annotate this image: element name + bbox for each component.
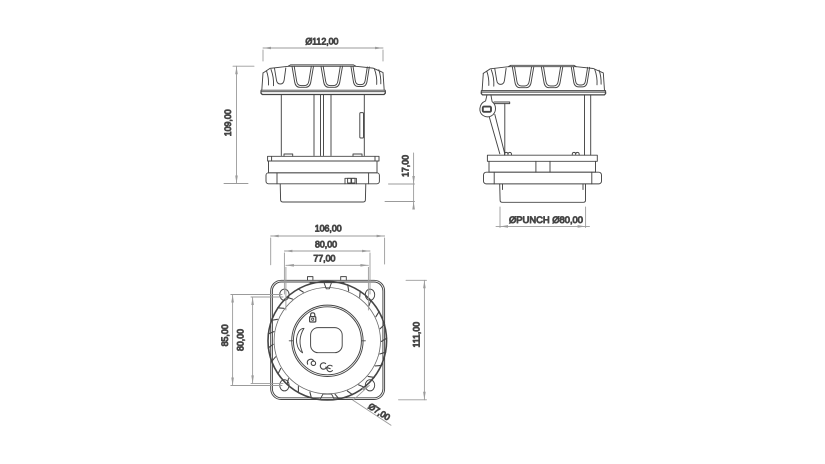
svg-text:80,00: 80,00 [236,329,246,351]
svg-text:106,00: 106,00 [315,224,342,234]
svg-text:111,00: 111,00 [412,322,422,348]
svg-text:80,00: 80,00 [315,240,337,250]
svg-text:85,00: 85,00 [220,324,230,346]
svg-text:77,00: 77,00 [313,254,335,264]
svg-text:ØPUNCH Ø80,00: ØPUNCH Ø80,00 [509,214,583,225]
svg-text:17,00: 17,00 [401,155,411,177]
svg-text:Ø7,00: Ø7,00 [366,401,392,422]
svg-text:Ø112,00: Ø112,00 [305,37,338,47]
svg-text:109,00: 109,00 [223,109,233,136]
